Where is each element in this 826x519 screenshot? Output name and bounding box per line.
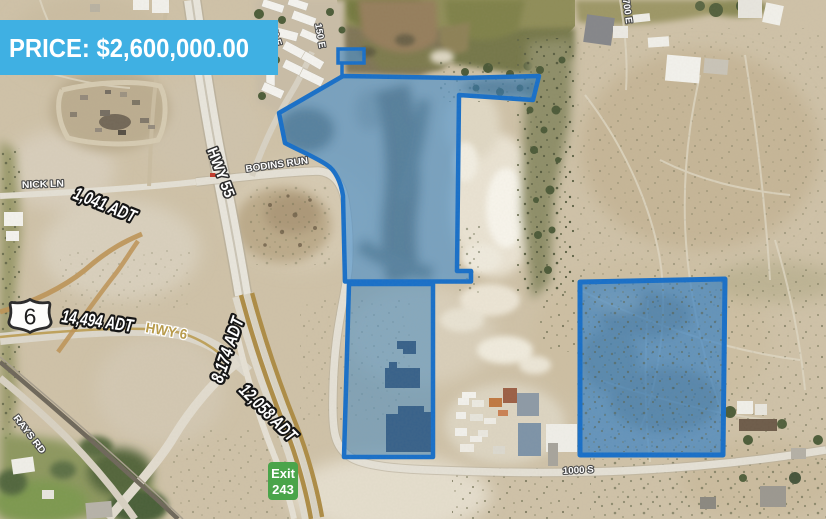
svg-text:243: 243: [272, 482, 294, 497]
svg-text:Exit: Exit: [271, 466, 296, 481]
svg-text:PRICE: $2,600,000.00: PRICE: $2,600,000.00: [9, 33, 249, 63]
svg-text:NICK LN: NICK LN: [22, 179, 65, 191]
svg-text:1000 S: 1000 S: [563, 464, 595, 477]
svg-text:6: 6: [24, 304, 37, 330]
